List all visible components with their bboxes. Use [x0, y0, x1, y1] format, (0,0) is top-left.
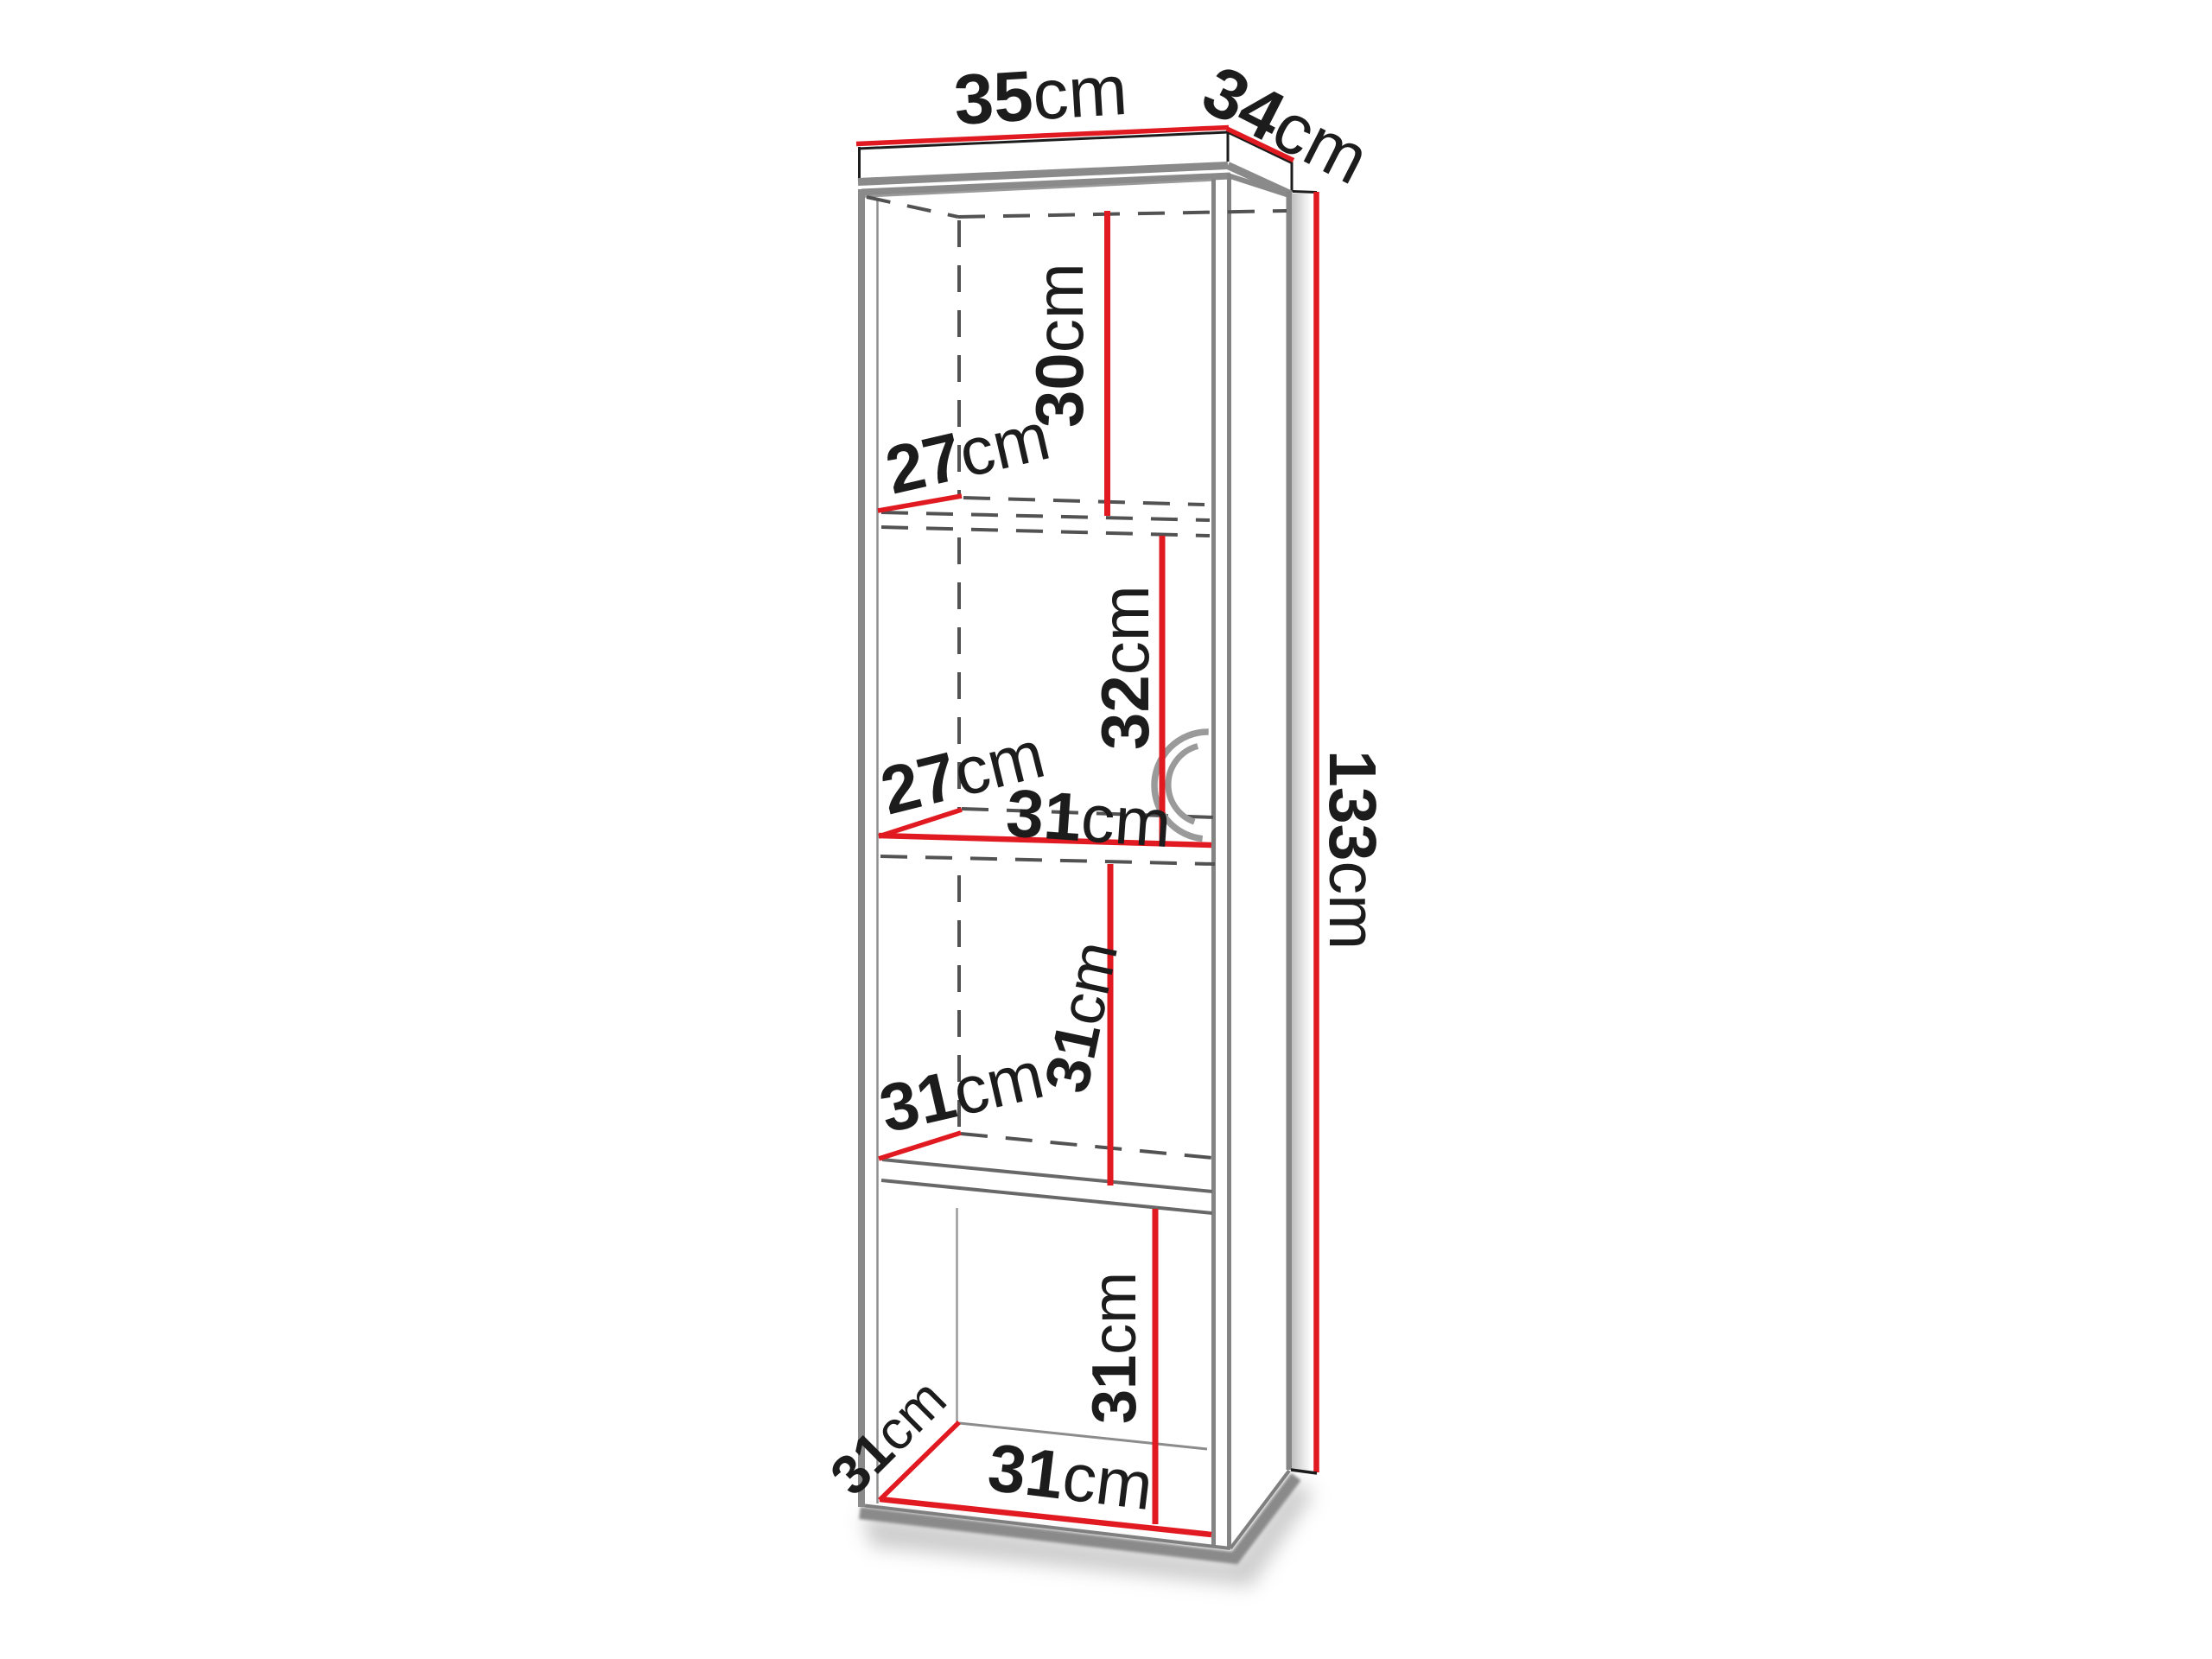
svg-text:35cm: 35cm — [952, 51, 1130, 140]
svg-text:31cm: 31cm — [1004, 774, 1173, 861]
svg-text:32cm: 32cm — [1087, 585, 1163, 750]
svg-text:31cm: 31cm — [1080, 1272, 1149, 1424]
svg-text:133cm: 133cm — [1315, 750, 1389, 950]
